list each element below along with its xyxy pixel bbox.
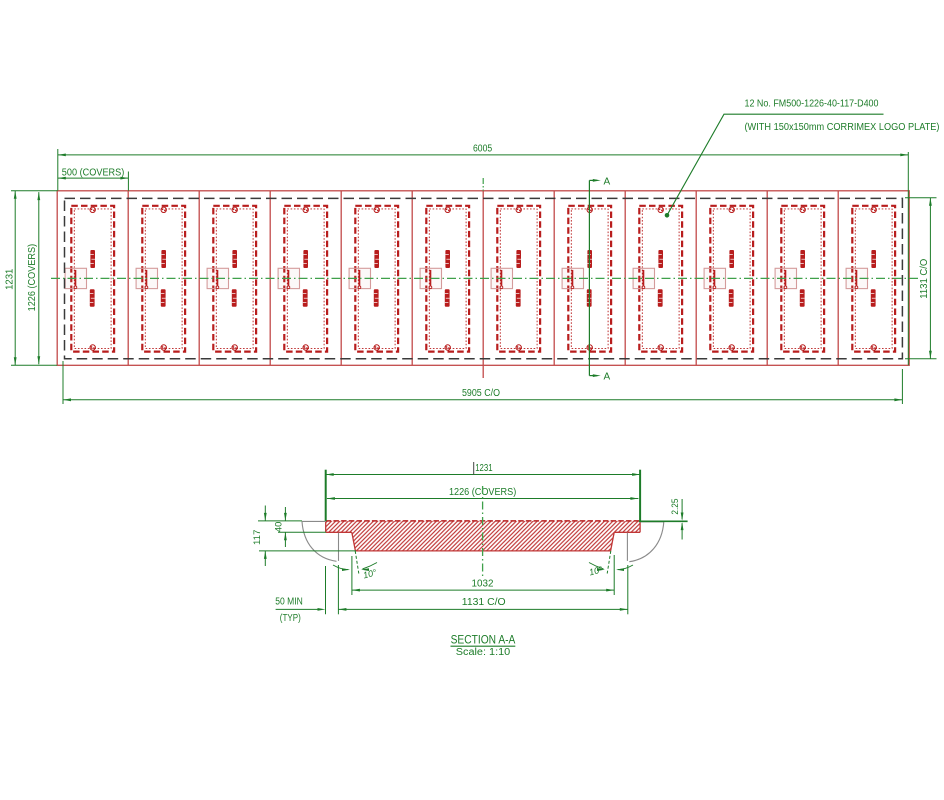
svg-text:50 MIN: 50 MIN [275,597,303,608]
svg-text:6005: 6005 [473,143,493,154]
svg-text:40: 40 [273,522,284,533]
svg-text:1231: 1231 [5,268,16,290]
svg-text:(WITH 150x150mm CORRIMEX LOGO: (WITH 150x150mm CORRIMEX LOGO PLATE) [745,122,940,133]
svg-text:A: A [604,372,611,383]
svg-text:2.25: 2.25 [670,499,680,515]
svg-text:117: 117 [252,530,263,546]
svg-text:(TYP): (TYP) [280,613,301,624]
svg-text:A: A [604,176,611,187]
svg-text:1131 C/O: 1131 C/O [462,597,506,608]
svg-text:12 No. FM500-1226-40-117-D400: 12 No. FM500-1226-40-117-D400 [745,98,879,109]
svg-text:1231: 1231 [475,463,493,474]
svg-text:Scale: 1:10: Scale: 1:10 [456,647,511,658]
svg-text:1226 (COVERS): 1226 (COVERS) [27,244,38,312]
svg-text:500 (COVERS): 500 (COVERS) [62,167,125,178]
svg-text:10°: 10° [362,567,378,580]
svg-text:1032: 1032 [472,578,494,589]
svg-text:10°: 10° [588,564,604,577]
svg-text:5905 C/O: 5905 C/O [462,388,500,399]
svg-text:SECTION A-A: SECTION A-A [451,635,516,647]
svg-text:1131 C/O: 1131 C/O [919,258,930,298]
